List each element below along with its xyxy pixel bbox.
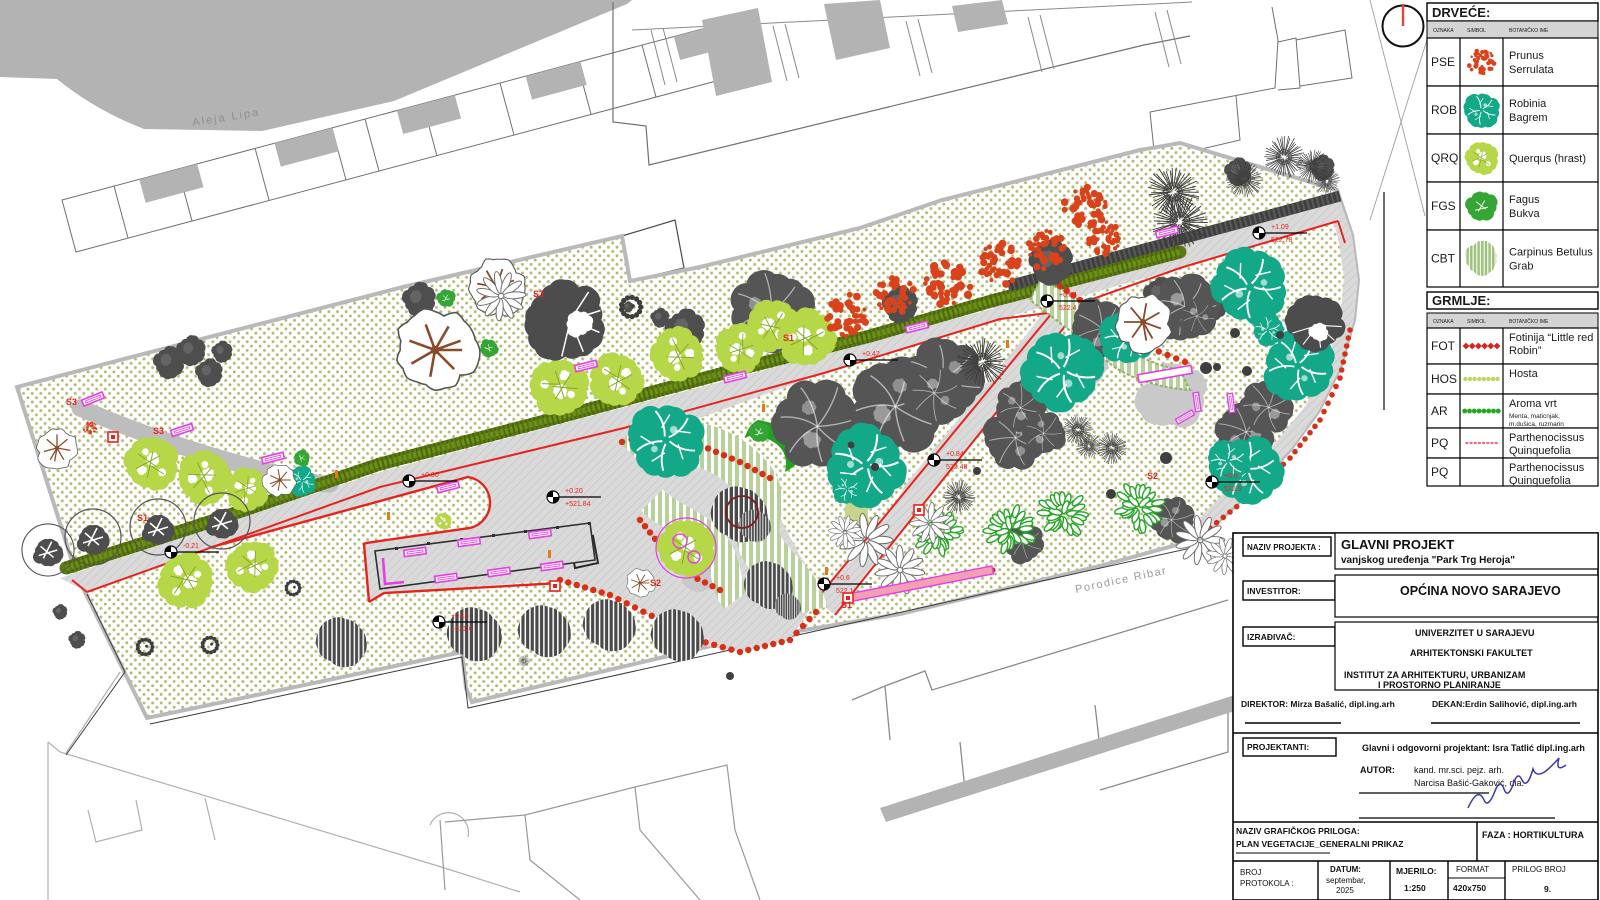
- svg-text:Fagus: Fagus: [1509, 194, 1540, 206]
- svg-text:522.48: 522.48: [946, 464, 968, 471]
- svg-text:Grab: Grab: [1509, 261, 1533, 273]
- svg-text:-0.21: -0.21: [183, 543, 199, 550]
- svg-text:PQ: PQ: [1431, 465, 1448, 479]
- svg-text:+0.42: +0.42: [862, 351, 880, 358]
- svg-text:AUTOR:: AUTOR:: [1360, 765, 1395, 775]
- svg-text:Aroma vrt: Aroma vrt: [1509, 398, 1557, 410]
- svg-text:INSTITUT ZA ARHITEKTURU, URBAN: INSTITUT ZA ARHITEKTURU, URBANIZAM: [1344, 670, 1525, 680]
- svg-text:DEKAN:Erdin Salihović, dipl.in: DEKAN:Erdin Salihović, dipl.ing.arh: [1432, 699, 1577, 709]
- svg-text:Serrulata: Serrulata: [1509, 64, 1555, 76]
- svg-text:FAZA : HORTIKULTURA: FAZA : HORTIKULTURA: [1482, 830, 1584, 840]
- svg-text:FGS: FGS: [1431, 199, 1456, 213]
- svg-text:OZNAKA: OZNAKA: [1433, 319, 1454, 325]
- svg-text:+521.84: +521.84: [565, 501, 591, 508]
- svg-text:+0.00: +0.00: [421, 472, 439, 479]
- svg-text:S1: S1: [841, 600, 852, 610]
- svg-text:1:250: 1:250: [1404, 883, 1426, 893]
- svg-text:AR: AR: [1431, 404, 1448, 418]
- svg-text:+0.84: +0.84: [1059, 292, 1077, 299]
- svg-text:PQ: PQ: [1431, 436, 1448, 450]
- svg-text:DRVEĆE:: DRVEĆE:: [1432, 5, 1490, 20]
- svg-text:Menta, maticnjak,: Menta, maticnjak,: [1509, 413, 1560, 420]
- svg-text:522.78: 522.78: [1271, 237, 1293, 244]
- svg-text:S2: S2: [650, 578, 661, 588]
- svg-text:ARHITEKTONSKI FAKULTET: ARHITEKTONSKI FAKULTET: [1410, 648, 1533, 658]
- svg-text:S3: S3: [153, 426, 164, 436]
- svg-text:OZNAKA: OZNAKA: [1433, 28, 1454, 34]
- svg-text:+521.6: +521.6: [451, 626, 473, 633]
- svg-text:BROJ: BROJ: [1240, 868, 1261, 877]
- svg-text:IZRAĐIVAČ:: IZRAĐIVAČ:: [1247, 631, 1296, 642]
- svg-text:ROB: ROB: [1431, 103, 1457, 117]
- svg-text:NAZIV GRAFIČKOG PRILOGA:: NAZIV GRAFIČKOG PRILOGA:: [1236, 825, 1360, 836]
- svg-text:522.5: 522.5: [1224, 486, 1242, 493]
- svg-text:QRQ: QRQ: [1431, 151, 1458, 165]
- svg-text:Parthenocissus: Parthenocissus: [1509, 462, 1585, 474]
- svg-text:CBT: CBT: [1431, 252, 1456, 266]
- svg-text:Fotinija “Little red: Fotinija “Little red: [1509, 332, 1593, 344]
- svg-text:kand. mr.sci. pejz. arh.: kand. mr.sci. pejz. arh.: [1414, 765, 1504, 775]
- svg-text:GRMLJE:: GRMLJE:: [1432, 293, 1491, 308]
- svg-text:Parthenocissus: Parthenocissus: [1509, 432, 1585, 444]
- svg-text:PLAN VEGETACIJE_GENERALNI PRIK: PLAN VEGETACIJE_GENERALNI PRIKAZ: [1236, 839, 1404, 849]
- svg-text:+1.09: +1.09: [1271, 224, 1289, 231]
- svg-text:Bukva: Bukva: [1509, 208, 1540, 220]
- svg-text:+0.84: +0.84: [946, 451, 964, 458]
- svg-text:+0.20: +0.20: [565, 488, 583, 495]
- svg-text:GLAVNI PROJEKT: GLAVNI PROJEKT: [1341, 537, 1454, 552]
- svg-text:FOT: FOT: [1431, 339, 1456, 353]
- svg-text:PRILOG BROJ: PRILOG BROJ: [1512, 865, 1566, 874]
- svg-text:UNIVERZITET U SARAJEVU: UNIVERZITET U SARAJEVU: [1415, 628, 1535, 638]
- svg-text:vanjskog uređenja "Park Trg He: vanjskog uređenja "Park Trg Heroja": [1341, 555, 1515, 566]
- svg-text:DATUM:: DATUM:: [1330, 865, 1361, 874]
- svg-text:Quinquefolia: Quinquefolia: [1509, 445, 1572, 457]
- svg-text:Prunus: Prunus: [1509, 50, 1544, 62]
- svg-text:Robinia: Robinia: [1509, 98, 1547, 110]
- svg-text:9.: 9.: [1544, 884, 1551, 894]
- svg-text:BOTANIČKO IME: BOTANIČKO IME: [1509, 318, 1549, 325]
- svg-text:S1: S1: [783, 333, 794, 343]
- svg-text:S3: S3: [66, 397, 77, 407]
- svg-text:S1: S1: [137, 513, 148, 523]
- svg-text:2025: 2025: [1336, 886, 1354, 895]
- svg-text:SIMBOL: SIMBOL: [1467, 319, 1486, 325]
- svg-text:INVESTITOR:: INVESTITOR:: [1247, 586, 1301, 596]
- svg-text:DIREKTOR: Mirza Bašalić, dipl.: DIREKTOR: Mirza Bašalić, dipl.ing.arh: [1241, 699, 1395, 709]
- svg-text:+0.9: +0.9: [1224, 473, 1238, 480]
- svg-text:S2: S2: [1147, 471, 1158, 481]
- svg-text:Robin”: Robin”: [1509, 345, 1542, 357]
- svg-text:Narcisa Bašić-Gaković, dia.: Narcisa Bašić-Gaković, dia.: [1414, 778, 1524, 788]
- svg-text:NAZIV PROJEKTA :: NAZIV PROJEKTA :: [1247, 543, 1321, 552]
- svg-text:Glavni i odgovorni projektant:: Glavni i odgovorni projektant: Isra Tatl…: [1362, 743, 1585, 753]
- svg-text:522.4: 522.4: [1059, 305, 1077, 312]
- svg-text:420x750: 420x750: [1453, 883, 1486, 893]
- svg-text:Querqus (hrast): Querqus (hrast): [1509, 153, 1586, 165]
- svg-text:PSE: PSE: [1431, 55, 1455, 69]
- svg-text:+0.16: +0.16: [451, 613, 469, 620]
- svg-text:PROTOKOLA :: PROTOKOLA :: [1240, 879, 1294, 888]
- svg-text:SIMBOL: SIMBOL: [1467, 28, 1486, 34]
- svg-text:Bagrem: Bagrem: [1509, 112, 1548, 124]
- svg-text:Carpinus Betulus: Carpinus Betulus: [1509, 247, 1593, 259]
- svg-text:m.dušica, ruzmarin: m.dušica, ruzmarin: [1509, 421, 1564, 428]
- svg-text:Hosta: Hosta: [1509, 368, 1539, 380]
- svg-text:Quinquefolia: Quinquefolia: [1509, 475, 1572, 487]
- svg-text:FORMAT: FORMAT: [1456, 865, 1489, 874]
- svg-text:septembar,: septembar,: [1326, 876, 1366, 885]
- svg-text:PROJEKTANTI:: PROJEKTANTI:: [1247, 742, 1309, 752]
- svg-text:MJERILO:: MJERILO:: [1396, 866, 1437, 876]
- svg-text:BOTANIČKO IME: BOTANIČKO IME: [1509, 27, 1549, 34]
- svg-text:S3: S3: [533, 289, 544, 299]
- svg-text:+0.6: +0.6: [836, 575, 850, 582]
- svg-text:OPĆINA NOVO SARAJEVO: OPĆINA NOVO SARAJEVO: [1400, 583, 1561, 598]
- svg-text:HOS: HOS: [1431, 372, 1457, 386]
- svg-text:I PROSTORNO PLANIRANJE: I PROSTORNO PLANIRANJE: [1378, 680, 1501, 690]
